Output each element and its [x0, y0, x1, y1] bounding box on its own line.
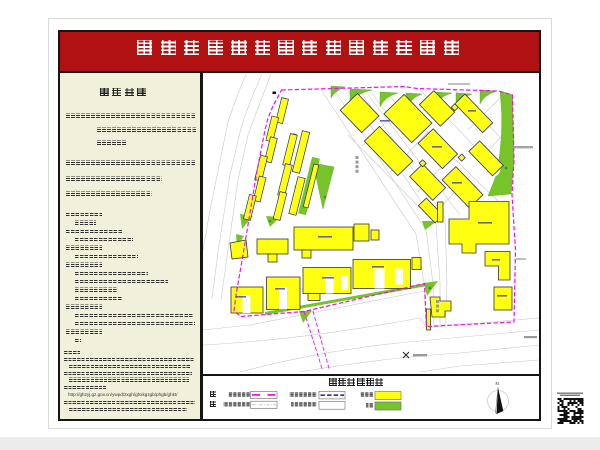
svg-text:N: N [496, 381, 499, 386]
